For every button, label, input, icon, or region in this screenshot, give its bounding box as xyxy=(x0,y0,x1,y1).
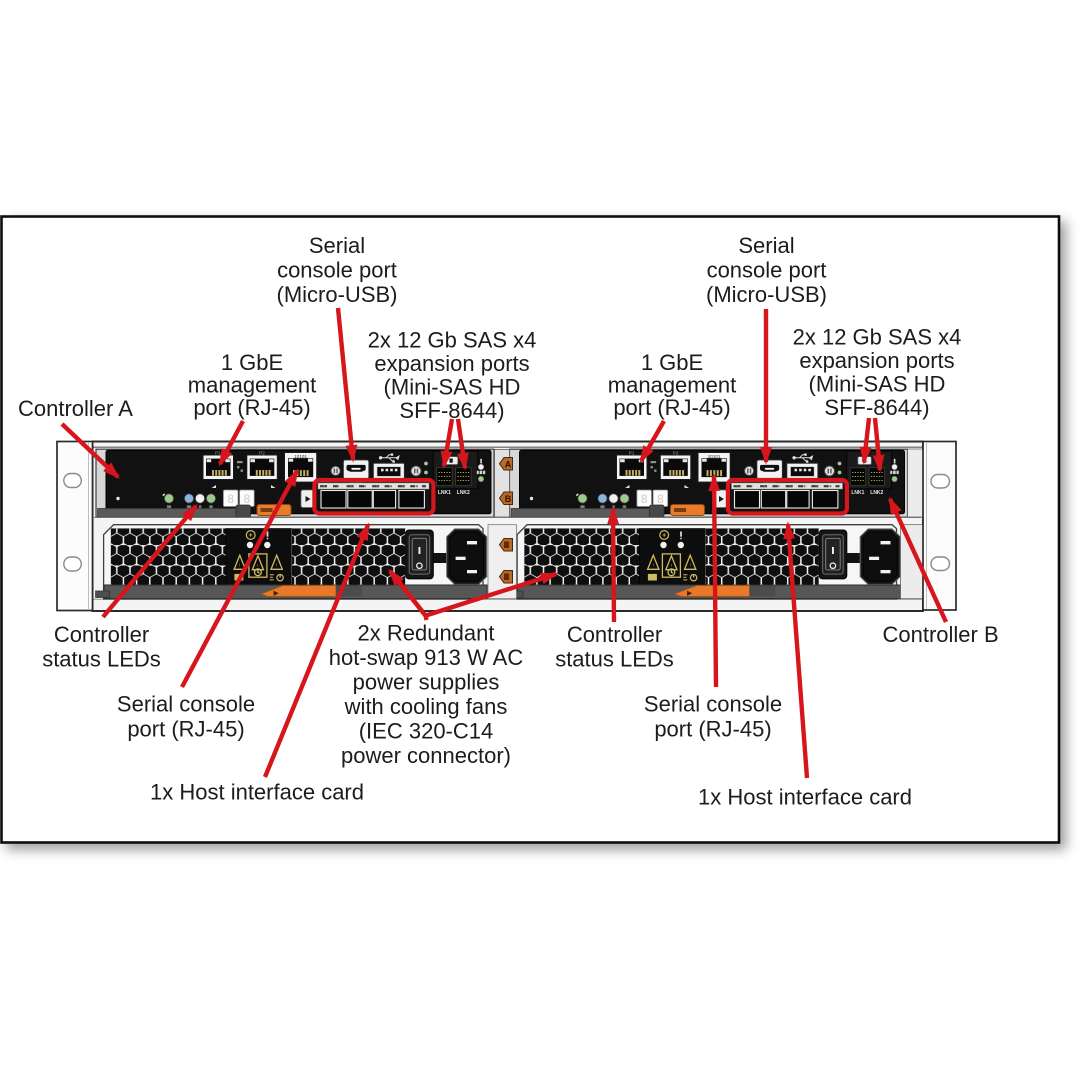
svg-text:(Mini-SAS HD: (Mini-SAS HD xyxy=(809,372,946,397)
svg-text:with cooling fans: with cooling fans xyxy=(344,694,508,719)
svg-text:power connector): power connector) xyxy=(341,743,511,768)
svg-text:management: management xyxy=(608,373,736,398)
svg-text:status LEDs: status LEDs xyxy=(42,647,161,672)
svg-text:Serial console: Serial console xyxy=(644,692,782,717)
svg-text:Serial: Serial xyxy=(738,233,794,258)
svg-text:port (RJ-45): port (RJ-45) xyxy=(127,717,244,742)
svg-text:expansion ports: expansion ports xyxy=(799,348,954,373)
svg-text:Controller A: Controller A xyxy=(18,396,133,421)
svg-text:A: A xyxy=(505,460,512,470)
svg-text:management: management xyxy=(188,373,316,398)
svg-text:Controller: Controller xyxy=(54,622,149,647)
svg-text:(Mini-SAS HD: (Mini-SAS HD xyxy=(384,375,521,400)
svg-text:Serial console: Serial console xyxy=(117,692,255,717)
svg-text:SFF-8644): SFF-8644) xyxy=(399,398,504,423)
svg-text:power supplies: power supplies xyxy=(353,670,500,695)
svg-text:(Micro-USB): (Micro-USB) xyxy=(277,282,398,307)
svg-text:console port: console port xyxy=(277,258,397,283)
svg-text:(Micro-USB): (Micro-USB) xyxy=(706,282,827,307)
svg-text:1x Host interface card: 1x Host interface card xyxy=(698,785,912,810)
svg-text:2x 12 Gb SAS x4: 2x 12 Gb SAS x4 xyxy=(793,325,962,350)
svg-text:Serial: Serial xyxy=(309,233,365,258)
svg-text:console port: console port xyxy=(707,258,827,283)
svg-text:1 GbE: 1 GbE xyxy=(221,350,283,375)
svg-text:2x 12 Gb SAS x4: 2x 12 Gb SAS x4 xyxy=(368,328,537,353)
svg-text:Controller: Controller xyxy=(567,622,662,647)
svg-text:port (RJ-45): port (RJ-45) xyxy=(654,717,771,742)
svg-text:port (RJ-45): port (RJ-45) xyxy=(613,395,730,420)
svg-text:B: B xyxy=(505,494,512,504)
svg-text:port (RJ-45): port (RJ-45) xyxy=(193,395,310,420)
svg-text:(IEC 320-C14: (IEC 320-C14 xyxy=(359,719,494,744)
svg-text:1 GbE: 1 GbE xyxy=(641,350,703,375)
svg-text:1x Host interface card: 1x Host interface card xyxy=(150,780,364,805)
svg-text:expansion ports: expansion ports xyxy=(374,351,529,376)
svg-text:SFF-8644): SFF-8644) xyxy=(824,395,929,420)
svg-text:status LEDs: status LEDs xyxy=(555,647,674,672)
svg-text:hot-swap 913 W AC: hot-swap 913 W AC xyxy=(329,645,524,670)
svg-text:Controller B: Controller B xyxy=(883,622,999,647)
svg-text:2x Redundant: 2x Redundant xyxy=(358,621,495,646)
